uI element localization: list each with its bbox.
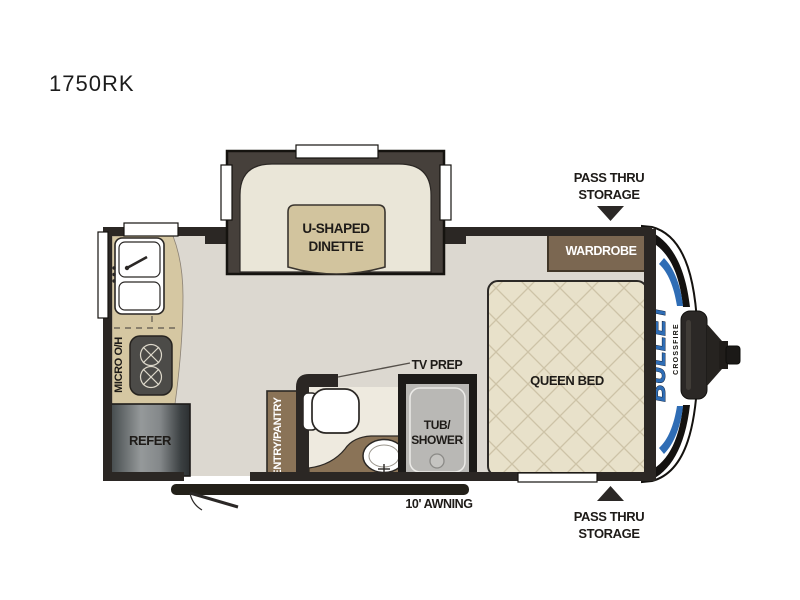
sink-knob [112,279,115,282]
entry-door-swing [190,493,238,507]
refrigerator: REFER [111,404,190,476]
pass-thru-bottom-label-2: STORAGE [578,526,640,541]
dinette-slide: U-SHAPED DINETTE [227,151,444,274]
slide-window-left [221,165,232,220]
pass-thru-top-label-1: PASS THRU [574,170,645,185]
hitch-base [681,311,707,399]
awning-label: 10' AWNING [405,497,472,511]
sink-knob [112,266,115,269]
bottom-wall-left [103,472,184,481]
slide-jog-left [205,227,228,244]
kitchen: MICRO O/H [112,236,183,404]
wardrobe: WARDROBE [548,230,652,271]
slide-window-top [296,145,378,158]
front-interior-wall [644,229,656,481]
arrow-down-icon [597,206,624,221]
pass-thru-storage-top: PASS THRU STORAGE [574,170,645,221]
brand-logo-crossfire: CROSSFIRE [673,323,680,375]
dinette-label-2: DINETTE [309,239,364,254]
tub-label-1: TUB/ [424,418,451,432]
bedroom-window [518,473,597,482]
sink-knob [112,273,115,276]
hitch [681,311,740,399]
pass-thru-storage-bottom: PASS THRU STORAGE [574,486,645,541]
toilet-bowl [312,389,359,433]
tv-prep-label: TV PREP [412,358,463,372]
micro-oh-label: MICRO O/H [113,337,125,393]
rear-window [98,232,108,318]
sink-faucet-base [125,266,129,270]
entry-pantry-cabinet: ENTRY/PANTRY [267,391,297,477]
wardrobe-label: WARDROBE [565,244,636,258]
shower-drain [430,454,444,468]
pass-thru-top-label-2: STORAGE [578,187,640,202]
page-title: 1750RK [49,71,135,97]
arrow-up-icon [597,486,624,501]
hitch-highlight [686,320,691,390]
tub-label-2: SHOWER [411,433,463,447]
pass-thru-bottom-label-1: PASS THRU [574,509,645,524]
queen-bed-label: QUEEN BED [530,373,604,388]
top-wall-right [443,227,652,236]
hitch-coupler-tip [726,346,740,364]
awning-bar [171,484,469,495]
refer-label: REFER [129,433,172,448]
slide-jog-right [443,227,466,244]
dinette-label-1: U-SHAPED [302,221,370,236]
kitchen-window [124,223,178,236]
entry-pantry-label: ENTRY/PANTRY [272,396,284,476]
slide-window-right [440,165,451,220]
queen-bed: QUEEN BED [488,281,647,476]
floorplan-page: 1750RK BULLET CROSSFIRE [0,0,800,600]
